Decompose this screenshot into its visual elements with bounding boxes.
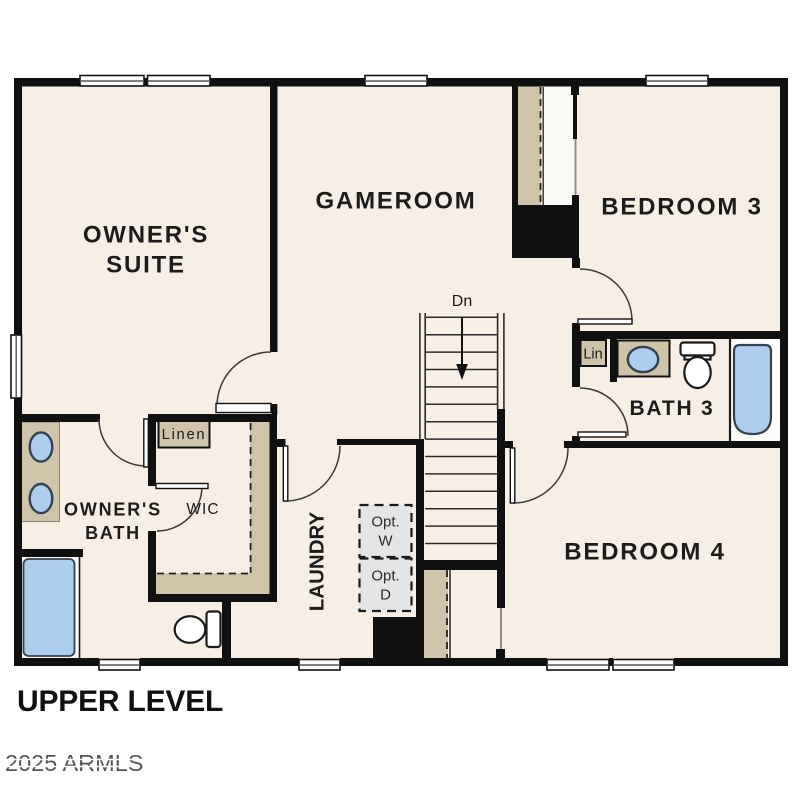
svg-text:W: W bbox=[378, 533, 393, 550]
svg-text:OWNER'S: OWNER'S bbox=[64, 500, 162, 520]
svg-text:GAMEROOM: GAMEROOM bbox=[315, 188, 476, 215]
svg-text:SUITE: SUITE bbox=[106, 252, 186, 279]
svg-text:2025 ARMLS: 2025 ARMLS bbox=[5, 750, 143, 776]
svg-text:Lin: Lin bbox=[583, 347, 602, 363]
svg-text:Linen: Linen bbox=[162, 427, 207, 443]
svg-text:BEDROOM 3: BEDROOM 3 bbox=[601, 194, 763, 221]
svg-text:LAUNDRY: LAUNDRY bbox=[306, 511, 329, 611]
svg-text:Opt.: Opt. bbox=[371, 514, 399, 531]
svg-text:BEDROOM 4: BEDROOM 4 bbox=[564, 539, 726, 566]
svg-text:WIC: WIC bbox=[186, 501, 219, 518]
svg-text:D: D bbox=[380, 587, 391, 604]
svg-text:Opt.: Opt. bbox=[371, 568, 399, 585]
svg-text:BATH 3: BATH 3 bbox=[629, 397, 714, 420]
svg-text:BATH: BATH bbox=[85, 523, 141, 543]
svg-text:Dn: Dn bbox=[452, 293, 472, 310]
svg-text:UPPER LEVEL: UPPER LEVEL bbox=[17, 685, 223, 718]
svg-text:OWNER'S: OWNER'S bbox=[83, 222, 209, 249]
